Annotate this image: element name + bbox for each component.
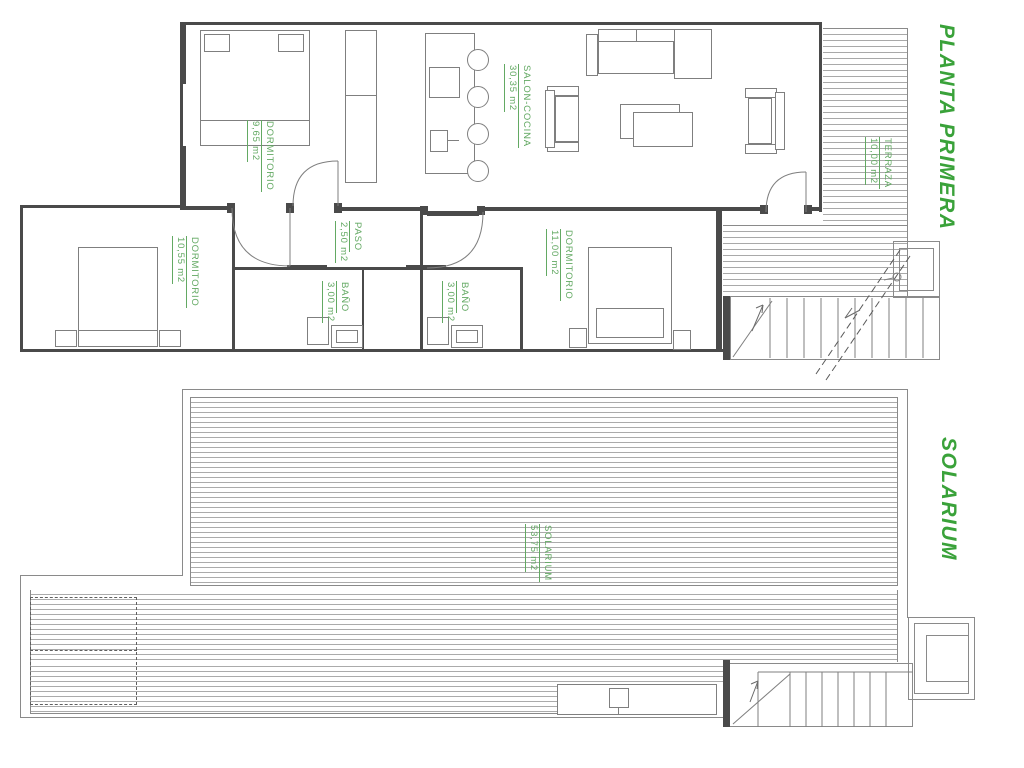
stair-steps-lower — [758, 672, 913, 727]
door-arc-bedroom1 — [293, 161, 338, 206]
door-arc-bedroom3 — [427, 212, 483, 268]
terrace-drain — [893, 273, 901, 281]
stair-diagonal-lower — [733, 674, 790, 724]
stair-direction-arrow-upper — [752, 305, 763, 331]
door-arc-bedroom2 — [232, 208, 290, 266]
section-cut-arrow — [845, 308, 860, 318]
section-cut-line — [816, 250, 910, 380]
terrace-drain-tick — [884, 278, 893, 280]
plan-linework — [0, 0, 1024, 768]
floor-plan-sheet: DORMITORIO9,65 m2 SALON-COCINA30,35 m2 T… — [0, 0, 1024, 768]
stair-direction-arrow-lower — [750, 681, 758, 702]
door-arc-terrace — [766, 172, 806, 212]
